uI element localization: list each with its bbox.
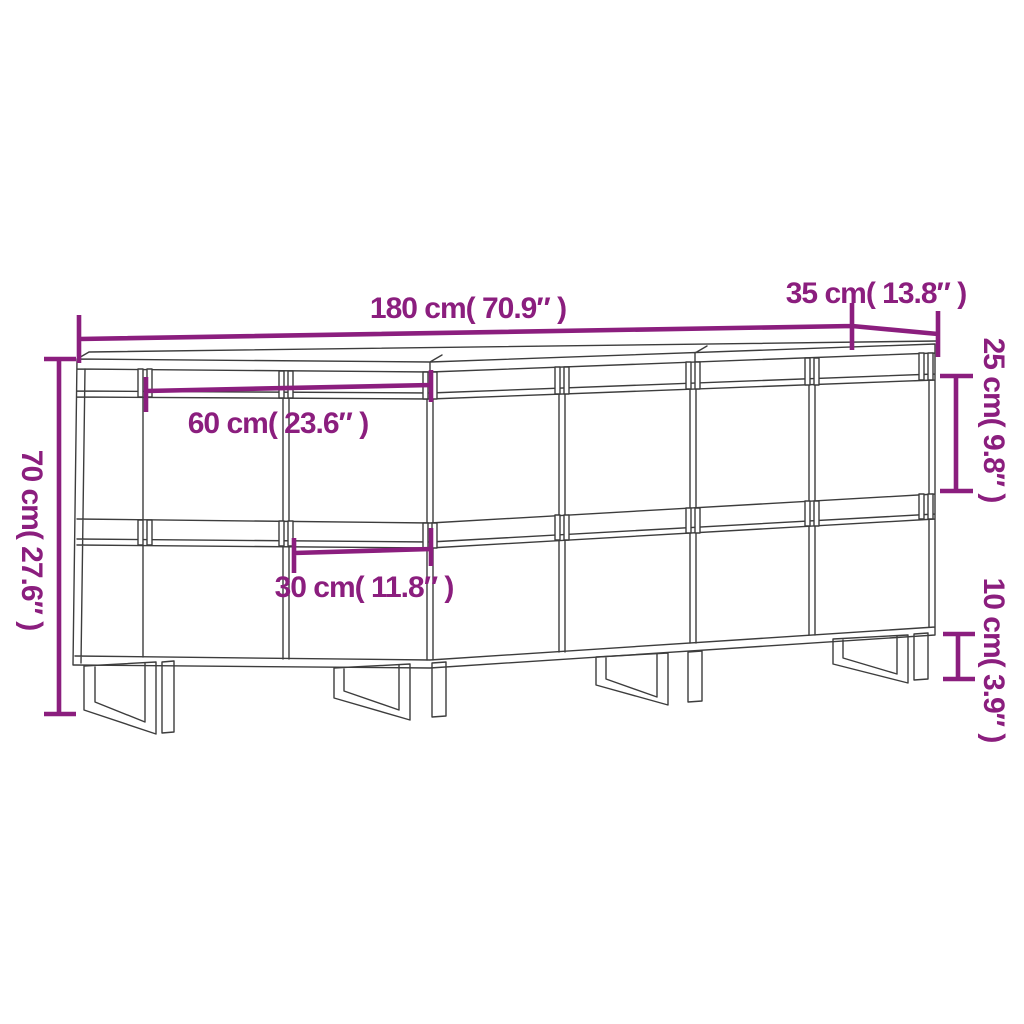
dimension-leg-height-line (943, 634, 975, 679)
dimension-depth-label: 35 cm( 13.8″ ) (786, 277, 966, 310)
leg-post-3 (688, 651, 702, 702)
dimension-door-width-line (294, 528, 431, 573)
dimension-total-width: 180 cm( 70.9″ ) (79, 292, 852, 363)
dimension-leg-height-label: 10 cm( 3.9″ ) (977, 578, 1010, 743)
leg-post-1 (162, 661, 174, 733)
dimension-depth: 35 cm( 13.8″ ) (786, 277, 966, 357)
sideboard-dimension-diagram: 180 cm( 70.9″ ) 35 cm( 13.8″ ) 70 cm( 27… (0, 0, 1024, 1024)
dimension-leg-height: 10 cm( 3.9″ ) (943, 578, 1010, 743)
dimension-total-width-label: 180 cm( 70.9″ ) (370, 292, 566, 325)
leg-post-2 (432, 662, 446, 717)
cabinet-line-art (73, 341, 938, 734)
dimension-unit-width-label: 60 cm( 23.6″ ) (188, 407, 368, 440)
dimension-height-label: 70 cm( 27.6″ ) (15, 450, 48, 630)
sled-legs (84, 633, 928, 734)
dimension-upper-door-height: 25 cm( 9.8″ ) (940, 338, 1010, 503)
dimension-height: 70 cm( 27.6″ ) (15, 359, 76, 714)
dimension-upper-door-height-line (940, 376, 973, 491)
leg-post-4 (914, 633, 928, 680)
dimension-door-width-label: 30 cm( 11.8″ ) (275, 571, 454, 604)
diagram-page: 180 cm( 70.9″ ) 35 cm( 13.8″ ) 70 cm( 27… (0, 0, 1024, 1024)
dimension-depth-line (852, 311, 938, 357)
dimension-upper-door-height-label: 25 cm( 9.8″ ) (977, 338, 1010, 503)
rail-connectors (138, 353, 933, 548)
